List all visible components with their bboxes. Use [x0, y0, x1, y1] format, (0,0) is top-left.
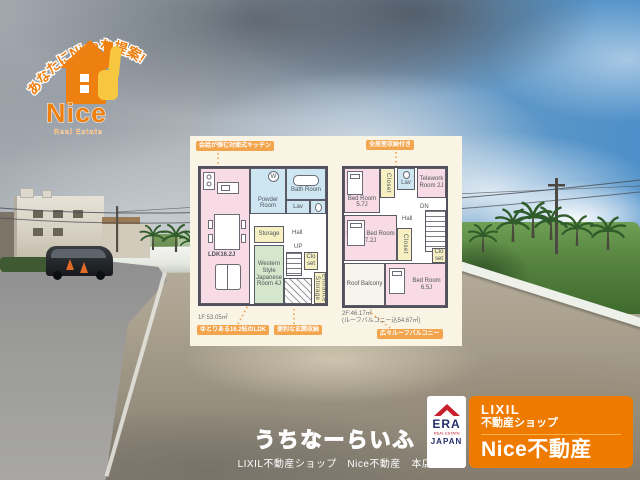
chair-icon [208, 234, 213, 243]
room-western-japanese: Western Style Japanese Room 4J [254, 245, 284, 304]
room-storage-1f: Storage [254, 226, 284, 243]
stove-icon [203, 172, 215, 190]
era-roof-icon [433, 401, 461, 417]
stairs-1f [286, 252, 302, 276]
area-1f: 1F:53.05㎡ [198, 315, 228, 322]
kitchen-sink-icon [217, 182, 239, 194]
chair-icon [208, 220, 213, 229]
listing-photo-montage: 会話が弾む対面式キッチン 全居室収納付き ゆとりある16.2帖のLDK 便利な玄… [0, 0, 640, 480]
stairs-2f [425, 210, 446, 252]
room-telework: Telework Room 2J [417, 168, 446, 198]
room-lav-1f-label: Lav [293, 204, 303, 211]
sofa-icon [215, 264, 241, 290]
room-lav-2f-label: Lav [401, 180, 411, 187]
room-lav-1f: Lav [286, 200, 310, 214]
bathtub-icon [293, 175, 319, 186]
toilet-icon [315, 203, 322, 212]
room-powder-label: Powder Room [251, 197, 285, 210]
dining-table-icon [214, 214, 240, 250]
closet-1f: Clo set [304, 252, 318, 270]
room-bed1-label: Bed Room 5.7J [345, 196, 379, 209]
lav-vanity [310, 200, 326, 214]
room-bath: Bath Room [286, 168, 326, 200]
bed-icon [389, 268, 405, 294]
stairs-up-label: UP [294, 244, 302, 250]
closet-bed1-label: Closet [384, 173, 391, 193]
nice-logo: あなたにNiceな提案! Nice Real Estate [18, 8, 188, 143]
nice-logo-subtitle: Real Estate [54, 129, 103, 136]
chair-icon [241, 234, 246, 243]
closet-master: Closet [397, 228, 412, 261]
room-bath-label: Bath Room [291, 187, 321, 194]
roof-balcony: Roof Balcony [344, 263, 385, 306]
site-name: うちなーらいふ [180, 429, 490, 452]
room-western-japanese-label: Western Style Japanese Room 4J [255, 261, 283, 287]
room-ldk-label: LDK16.2J [208, 252, 235, 258]
room-lav-2f: Lav [397, 168, 415, 190]
lixil-brand: LIXIL [481, 403, 621, 417]
toilet-icon [403, 171, 410, 179]
floorplan-panel: 会話が弾む対面式キッチン 全居室収納付き ゆとりある16.2帖のLDK 便利な玄… [190, 136, 462, 346]
store-name: LIXIL不動産ショップ Nice不動産 本店 [180, 455, 490, 470]
entrance-storage: Entrance Storage [314, 272, 326, 304]
hall-2f-label: Hall [402, 216, 412, 222]
room-telework-label: Telework Room 2J [418, 176, 445, 189]
divider [481, 434, 621, 435]
closet-master-label: Closet [401, 234, 408, 254]
bed-icon [347, 171, 363, 195]
entrance-genkan [284, 278, 312, 304]
closet-bed1: Closet [380, 168, 395, 198]
closet-small-2f: Clo set [432, 248, 446, 263]
hall-1f-label: Hall [292, 230, 302, 236]
closet-1f-label: Clo set [305, 254, 317, 267]
nice-wordmark: Nice [46, 98, 107, 129]
area-2f: 2F:46.17㎡ [342, 311, 372, 318]
bed-icon [347, 220, 365, 246]
entrance-storage-label: Entrance Storage [314, 273, 326, 303]
washer-icon: W [268, 171, 279, 182]
lixil-shop-badge: LIXIL 不動産ショップ Nice不動産 [469, 396, 633, 468]
lixil-brand-line2: 不動産ショップ [481, 417, 621, 430]
closet-small-2f-label: Clo set [433, 249, 445, 262]
floorplan-2f: Bed Room 5.7J Closet Lav Telework Room 2… [342, 166, 448, 308]
shop-name: Nice不動産 [481, 438, 621, 461]
roof-balcony-label: Roof Balcony [347, 281, 383, 288]
floorplan-1f: LDK16.2J Powder Room W [198, 166, 328, 306]
room-bed2-label: Bed Room 6.5J [412, 278, 442, 291]
chair-icon [241, 220, 246, 229]
footer-text: うちなーらいふ LIXIL不動産ショップ Nice不動産 本店 [180, 429, 490, 470]
room-storage-1f-label: Storage [258, 231, 279, 238]
area-2f-note: (ルーフバルコニー込54.67㎡) [342, 318, 421, 325]
